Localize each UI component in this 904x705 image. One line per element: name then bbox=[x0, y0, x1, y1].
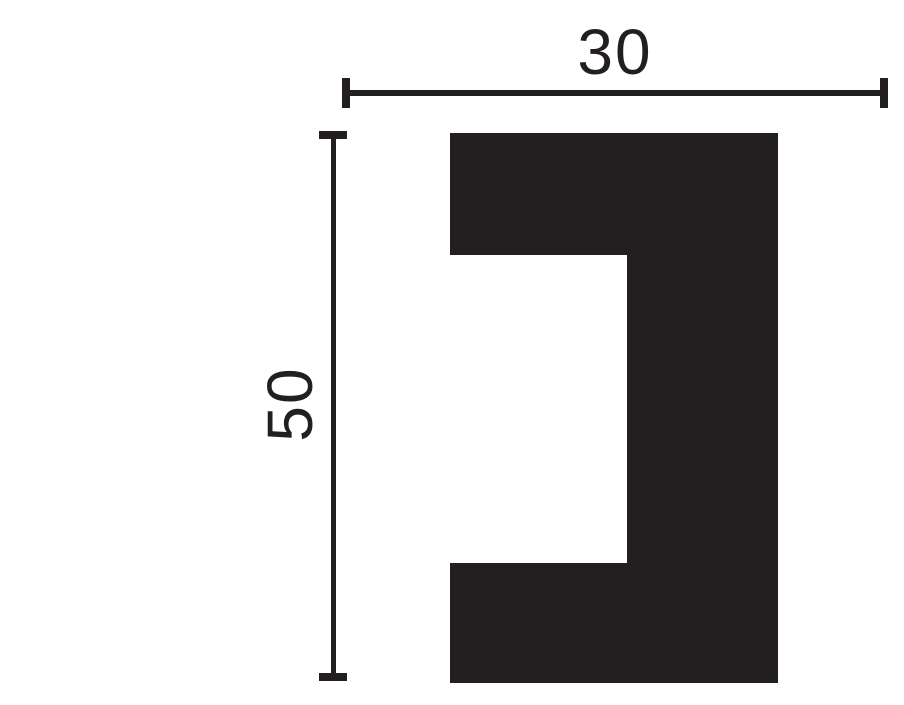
profile-top-flange bbox=[450, 133, 778, 255]
width-dimension-label: 30 bbox=[344, 20, 886, 84]
profile-web bbox=[627, 255, 778, 563]
width-dimension-right-tick bbox=[880, 78, 888, 108]
height-dimension-top-tick bbox=[319, 131, 347, 139]
height-dimension-bottom-tick bbox=[319, 673, 347, 681]
height-dimension-line bbox=[331, 131, 336, 681]
width-dimension-line bbox=[344, 90, 886, 96]
height-dimension-label: 50 bbox=[258, 366, 322, 441]
profile-drawing-canvas: 30 50 bbox=[0, 0, 904, 705]
profile-shape bbox=[450, 133, 778, 683]
profile-bottom-flange bbox=[450, 563, 778, 683]
width-dimension-left-tick bbox=[342, 78, 350, 108]
